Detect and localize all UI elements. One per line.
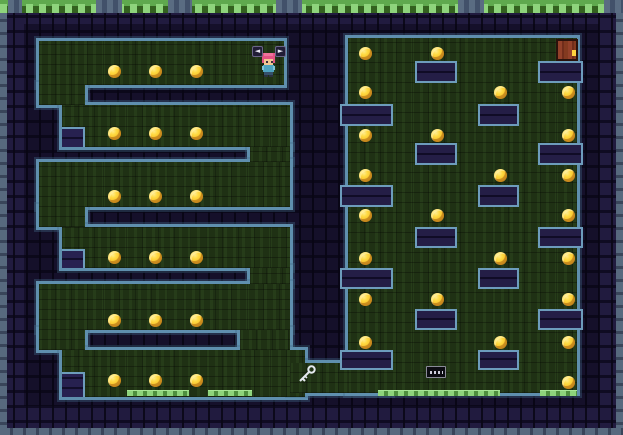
coin[interactable] [562, 209, 575, 222]
wall-protrusion-left [340, 350, 393, 370]
arrow-left-icon: ◄ [255, 47, 260, 55]
player-hair-highlight [264, 53, 273, 56]
wall-stair-step [62, 249, 85, 268]
wall-protrusion-right [538, 61, 583, 83]
grass-stone-break [96, 0, 122, 13]
coin[interactable] [562, 293, 575, 306]
coin[interactable] [494, 336, 507, 349]
grass-stone-break [168, 0, 192, 13]
sign-plaque[interactable] [426, 366, 446, 378]
wall-platform [478, 350, 519, 370]
top-grass-strip [0, 0, 623, 13]
coin[interactable] [431, 47, 444, 60]
wall-platform [478, 185, 519, 207]
wall-protrusion-left [340, 104, 393, 126]
green-floor-corridor-4 [62, 227, 290, 268]
coin[interactable] [562, 169, 575, 182]
sign-pixel-text [430, 371, 443, 374]
wall-protrusion-right [538, 227, 583, 248]
coin[interactable] [562, 86, 575, 99]
wall-protrusion-right [538, 309, 583, 330]
floor-grass-patch [127, 390, 189, 396]
floor-grass-patch [208, 390, 252, 396]
wall-protrusion-left [340, 185, 393, 207]
wall-protrusion-left [340, 268, 393, 289]
player-right-sleeve [273, 66, 275, 70]
wall-stair-step [62, 372, 85, 397]
green-floor-gap-right-2-3 [250, 147, 290, 162]
coin[interactable] [359, 209, 372, 222]
grass-stone-break [276, 0, 302, 13]
coin[interactable] [108, 314, 121, 327]
coin[interactable] [190, 374, 203, 387]
coin[interactable] [108, 251, 121, 264]
outer-wall-edge [0, 428, 623, 435]
green-floor-corridor-1 [39, 41, 284, 85]
movement-hint-left-key: ◄ [252, 46, 263, 57]
player-left-foot [264, 75, 268, 77]
coin[interactable] [562, 252, 575, 265]
wall-platform [478, 268, 519, 289]
wall-platform [415, 61, 457, 83]
coin[interactable] [108, 190, 121, 203]
coin[interactable] [494, 86, 507, 99]
grass-stone-break [458, 0, 484, 13]
coin[interactable] [190, 190, 203, 203]
coin[interactable] [190, 251, 203, 264]
coin[interactable] [359, 293, 372, 306]
coin[interactable] [562, 129, 575, 142]
player-right-foot [269, 75, 273, 77]
green-floor-corridor-2 [62, 105, 290, 147]
outer-wall-edge [0, 12, 7, 435]
door-keyhole-icon [572, 50, 576, 56]
coin[interactable] [149, 374, 162, 387]
player-right-eye [271, 61, 273, 63]
coin[interactable] [359, 336, 372, 349]
coin[interactable] [494, 252, 507, 265]
coin[interactable] [190, 314, 203, 327]
green-floor-gap-left-5-6 [39, 330, 85, 350]
coin[interactable] [149, 65, 162, 78]
coin[interactable] [149, 251, 162, 264]
green-floor-gap-left-3-4 [39, 207, 85, 227]
coin[interactable] [562, 336, 575, 349]
player-left-sleeve [262, 66, 264, 70]
coin[interactable] [149, 314, 162, 327]
coin[interactable] [494, 169, 507, 182]
coin[interactable] [562, 376, 575, 389]
green-floor-gap-right-5-6 [240, 330, 290, 350]
coin[interactable] [431, 209, 444, 222]
coin[interactable] [359, 129, 372, 142]
coin[interactable] [108, 374, 121, 387]
outer-wall-edge [616, 12, 623, 435]
grass-tufts [0, 4, 623, 13]
green-floor-corridor-5 [39, 284, 290, 330]
key-icon [296, 364, 318, 386]
arrow-right-icon: ► [278, 47, 283, 55]
movement-hint-right-key: ► [275, 46, 286, 57]
green-floor-gap-left-1-2 [39, 85, 85, 105]
coin[interactable] [149, 190, 162, 203]
coin[interactable] [149, 127, 162, 140]
floor-grass-patch [540, 390, 577, 396]
green-floor-corridor-3 [39, 162, 290, 207]
coin[interactable] [359, 47, 372, 60]
coin[interactable] [108, 127, 121, 140]
coin[interactable] [359, 86, 372, 99]
wall-platform [415, 227, 457, 248]
exit-door[interactable] [556, 39, 578, 61]
coin[interactable] [190, 65, 203, 78]
wall-platform [478, 104, 519, 126]
wall-stair-step [62, 127, 85, 147]
green-floor-gap-right-4-5 [250, 268, 290, 284]
player-left-eye [266, 61, 268, 63]
coin[interactable] [108, 65, 121, 78]
wall-protrusion-right [538, 143, 583, 165]
game-canvas: ◄► [0, 0, 623, 435]
wall-platform [415, 309, 457, 330]
grass-stone-break [604, 0, 623, 13]
floor-grass-patch [378, 390, 500, 396]
player-character[interactable] [261, 53, 276, 77]
grass-stone-break [8, 0, 22, 13]
coin[interactable] [431, 129, 444, 142]
key-item[interactable] [296, 364, 318, 386]
wall-platform [415, 143, 457, 165]
coin[interactable] [431, 293, 444, 306]
coin[interactable] [359, 252, 372, 265]
coin[interactable] [359, 169, 372, 182]
green-floor-right-room [348, 38, 577, 393]
coin[interactable] [190, 127, 203, 140]
